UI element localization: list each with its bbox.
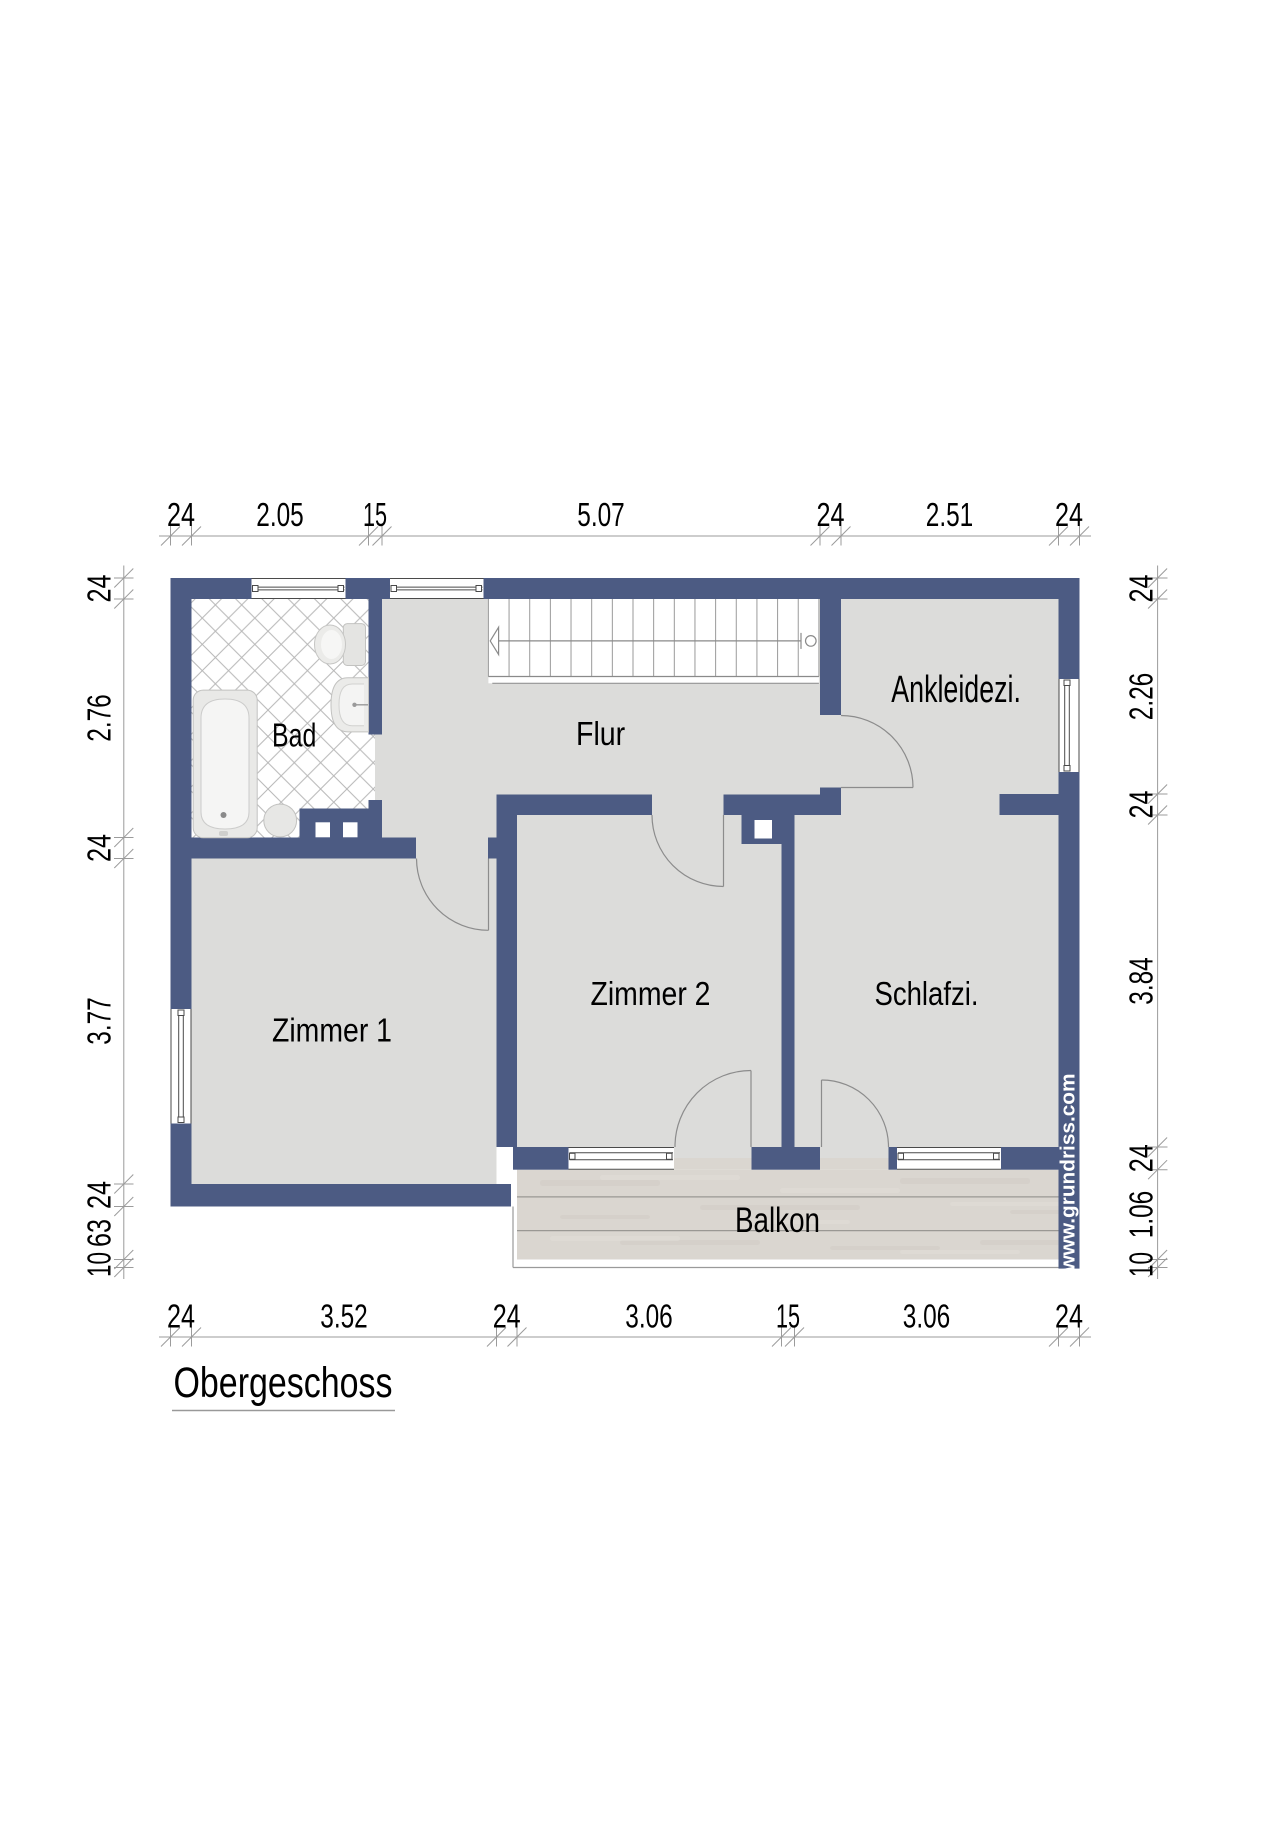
svg-text:10: 10 xyxy=(81,1252,118,1277)
svg-text:2.76: 2.76 xyxy=(81,694,118,742)
svg-text:Flur: Flur xyxy=(576,715,625,752)
svg-text:15: 15 xyxy=(776,1298,800,1335)
svg-text:Zimmer 1: Zimmer 1 xyxy=(272,1011,392,1048)
svg-text:24: 24 xyxy=(1055,1298,1083,1335)
svg-text:2.26: 2.26 xyxy=(1123,673,1160,721)
svg-text:24: 24 xyxy=(1123,1144,1160,1172)
svg-text:Obergeschoss: Obergeschoss xyxy=(174,1359,393,1407)
svg-text:24: 24 xyxy=(493,1298,521,1335)
svg-text:Schlafzi.: Schlafzi. xyxy=(875,975,979,1012)
svg-text:Balkon: Balkon xyxy=(735,1201,820,1240)
svg-text:Zimmer 2: Zimmer 2 xyxy=(591,975,711,1012)
svg-text:24: 24 xyxy=(81,834,118,862)
svg-text:24: 24 xyxy=(1123,575,1160,603)
svg-text:10: 10 xyxy=(1123,1252,1160,1277)
svg-text:24: 24 xyxy=(1055,496,1083,533)
svg-text:15: 15 xyxy=(363,496,387,533)
svg-text:24: 24 xyxy=(817,496,845,533)
svg-text:63: 63 xyxy=(81,1219,118,1247)
svg-text:24: 24 xyxy=(167,496,195,533)
svg-text:2.05: 2.05 xyxy=(256,496,304,533)
svg-text:5.07: 5.07 xyxy=(577,496,625,533)
svg-text:Bad: Bad xyxy=(272,717,316,754)
svg-text:3.06: 3.06 xyxy=(903,1298,951,1335)
svg-text:3.06: 3.06 xyxy=(625,1298,673,1335)
svg-text:Ankleidezi.: Ankleidezi. xyxy=(891,669,1021,711)
svg-text:24: 24 xyxy=(167,1298,195,1335)
svg-text:2.51: 2.51 xyxy=(926,496,974,533)
svg-text:1.06: 1.06 xyxy=(1123,1191,1160,1239)
svg-text:www.grundriss.com: www.grundriss.com xyxy=(1058,1074,1080,1273)
svg-text:24: 24 xyxy=(1123,791,1160,819)
svg-text:24: 24 xyxy=(81,1181,118,1209)
svg-text:3.77: 3.77 xyxy=(81,997,118,1045)
svg-text:3.84: 3.84 xyxy=(1123,957,1160,1005)
svg-text:24: 24 xyxy=(81,575,118,603)
svg-text:3.52: 3.52 xyxy=(320,1298,368,1335)
